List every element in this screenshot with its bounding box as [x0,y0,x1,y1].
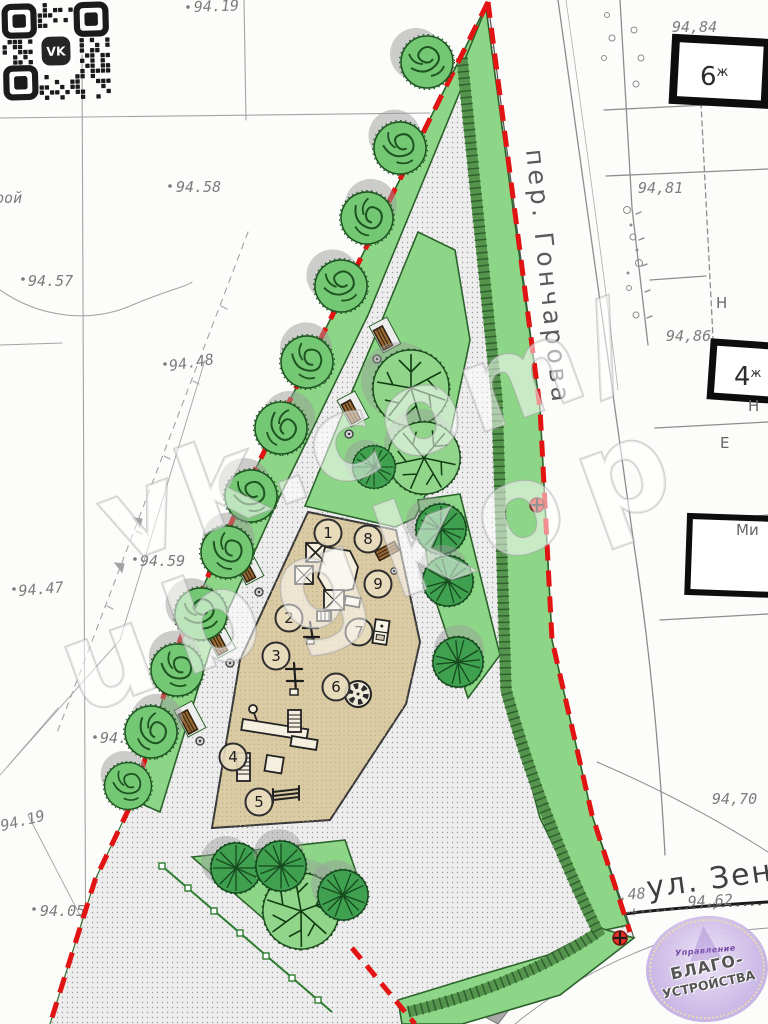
elevation-label: 94.57 [28,272,73,290]
building-4-number: 4 [734,362,751,392]
site-plan-svg: орой 94.19 94.58 94.57 94.48 94.59 94.47… [0,0,768,1024]
marker-5-label: 5 [254,793,264,811]
elevation-label: 94.47 [18,578,65,600]
park-plan: 1 2 3 4 5 6 7 8 9 vk.com/ ubgkop [40,2,710,1024]
topo-line [0,113,430,118]
map-letter-n: Н [748,397,759,415]
building-6-number: 6 [700,62,717,92]
elevation-label: 94.19 [0,806,47,834]
map-letter-n: Н [716,294,727,312]
vk-qr-code: VK [1,1,112,102]
topo-line [7,708,58,767]
elevation-label: 94,81 [638,179,683,197]
elevation-label: 94.58 [176,178,221,196]
partial-word-label: орой [0,189,22,207]
elevation-label: 94.48 [168,350,215,375]
topo-line [244,0,246,120]
marker-4: 4 [220,744,247,771]
elevation-label: 94,70 [712,790,757,808]
topo-line [0,343,62,345]
map-letter-e: Е [720,434,729,452]
elevation-label: 94.19 [194,0,240,16]
marker-5: 5 [246,789,273,816]
map-letter-m: Ми [736,521,759,539]
vk-logo-icon: VK [38,33,75,70]
elevation-label: 94,84 [672,18,717,36]
marker-4-label: 4 [228,748,238,766]
site-plan-page: орой 94.19 94.58 94.57 94.48 94.59 94.47… [0,0,768,1024]
topo-line [82,55,86,1024]
geodetic-mark-icon [613,931,627,945]
lot-line-dashed [701,103,713,338]
elevation-label: 94,86 [666,327,711,345]
elevation-label: 94.05 [40,902,85,920]
building-6-type: ж [717,65,729,80]
vk-logo-label: VK [46,44,66,59]
marker-6-label: 6 [331,678,341,696]
deciduous-tree [390,28,455,90]
trash-bin [196,737,204,745]
lot-line [620,0,648,345]
marker-6: 6 [323,674,350,701]
building-4-type: ж [751,366,762,380]
